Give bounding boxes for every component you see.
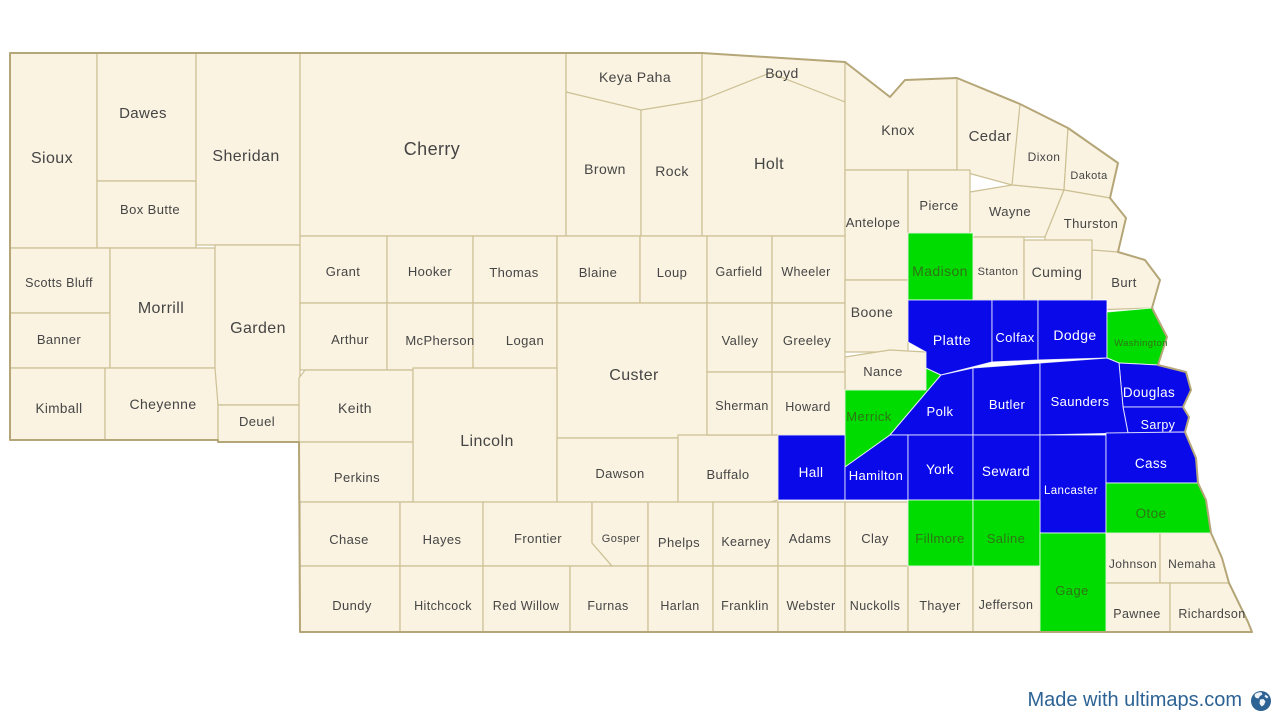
county-label-chase: Chase <box>329 532 369 547</box>
county-label-johnson: Johnson <box>1109 557 1157 571</box>
county-label-red-willow: Red Willow <box>493 599 560 613</box>
county-label-clay: Clay <box>861 531 889 546</box>
county-label-madison: Madison <box>912 263 968 279</box>
county-label-seward: Seward <box>982 464 1030 479</box>
county-label-polk: Polk <box>927 404 954 419</box>
county-label-colfax: Colfax <box>995 330 1034 345</box>
county-label-dawson: Dawson <box>595 466 644 481</box>
county-label-sherman: Sherman <box>715 399 769 413</box>
county-washington[interactable] <box>1107 308 1167 365</box>
county-label-antelope: Antelope <box>846 215 901 230</box>
county-label-garfield: Garfield <box>716 265 763 279</box>
globe-icon <box>1250 690 1272 712</box>
county-label-platte: Platte <box>933 332 971 348</box>
county-label-nuckolls: Nuckolls <box>850 599 900 613</box>
county-label-scotts-bluff: Scotts Bluff <box>25 276 93 290</box>
county-label-hamilton: Hamilton <box>849 468 904 483</box>
county-label-dodge: Dodge <box>1053 327 1096 343</box>
county-label-loup: Loup <box>657 265 688 280</box>
county-lancaster[interactable] <box>1040 435 1106 533</box>
county-label-deuel: Deuel <box>239 414 275 429</box>
county-label-garden: Garden <box>230 320 286 337</box>
county-label-furnas: Furnas <box>587 599 628 613</box>
county-label-greeley: Greeley <box>783 333 831 348</box>
county-label-howard: Howard <box>785 400 830 414</box>
county-holt[interactable] <box>702 73 845 236</box>
county-label-rock: Rock <box>655 163 689 179</box>
county-label-franklin: Franklin <box>721 599 769 613</box>
county-label-dixon: Dixon <box>1028 150 1061 164</box>
county-label-cass: Cass <box>1135 456 1167 471</box>
county-label-gosper: Gosper <box>602 533 640 545</box>
nebraska-county-map: SiouxDawesBox ButteSheridanScotts BluffB… <box>0 0 1280 720</box>
county-label-stanton: Stanton <box>978 266 1019 278</box>
county-label-cedar: Cedar <box>969 128 1012 145</box>
county-label-sioux: Sioux <box>31 150 73 167</box>
county-label-pierce: Pierce <box>919 198 958 213</box>
county-label-blaine: Blaine <box>579 265 618 280</box>
county-label-nance: Nance <box>863 364 903 379</box>
county-label-hitchcock: Hitchcock <box>414 599 472 613</box>
county-label-dundy: Dundy <box>332 598 372 613</box>
county-label-butler: Butler <box>989 397 1026 412</box>
county-label-grant: Grant <box>326 264 361 279</box>
county-label-buffalo: Buffalo <box>706 467 749 482</box>
county-label-gage: Gage <box>1055 583 1088 598</box>
county-label-saline: Saline <box>987 531 1026 546</box>
county-label-kearney: Kearney <box>721 535 771 549</box>
county-label-frontier: Frontier <box>514 531 562 546</box>
map-canvas: SiouxDawesBox ButteSheridanScotts BluffB… <box>0 0 1280 720</box>
county-label-brown: Brown <box>584 161 626 177</box>
attribution-text: Made with ultimaps.com <box>1027 689 1242 712</box>
county-label-holt: Holt <box>754 156 784 173</box>
county-label-valley: Valley <box>722 333 759 348</box>
county-label-wayne: Wayne <box>989 204 1031 219</box>
county-label-dakota: Dakota <box>1070 170 1108 182</box>
county-label-boone: Boone <box>851 304 893 320</box>
county-label-cuming: Cuming <box>1032 264 1083 280</box>
county-phelps[interactable] <box>648 502 713 566</box>
county-label-hayes: Hayes <box>423 532 462 547</box>
county-label-kimball: Kimball <box>35 401 82 416</box>
county-label-harlan: Harlan <box>660 599 699 613</box>
county-label-cheyenne: Cheyenne <box>129 396 196 412</box>
county-label-webster: Webster <box>786 599 835 613</box>
county-dakota[interactable] <box>1064 128 1118 198</box>
county-label-adams: Adams <box>789 531 832 546</box>
county-label-douglas: Douglas <box>1123 385 1175 400</box>
county-label-sheridan: Sheridan <box>212 148 279 165</box>
county-label-perkins: Perkins <box>334 470 380 485</box>
county-label-boyd: Boyd <box>765 65 799 81</box>
attribution-link[interactable]: Made with ultimaps.com <box>1027 689 1272 712</box>
county-label-richardson: Richardson <box>1178 607 1245 621</box>
county-label-hall: Hall <box>799 465 824 480</box>
county-label-morrill: Morrill <box>138 300 184 317</box>
county-label-burt: Burt <box>1111 275 1136 290</box>
county-label-lincoln: Lincoln <box>460 433 514 450</box>
county-label-hooker: Hooker <box>408 264 453 279</box>
county-label-saunders: Saunders <box>1051 394 1110 409</box>
county-label-sarpy: Sarpy <box>1141 418 1176 432</box>
county-label-banner: Banner <box>37 332 82 347</box>
county-label-keya-paha: Keya Paha <box>599 69 671 85</box>
county-label-thomas: Thomas <box>489 265 538 280</box>
county-label-logan: Logan <box>506 333 544 348</box>
county-label-box-butte: Box Butte <box>120 202 180 217</box>
county-label-washington: Washington <box>1114 338 1168 349</box>
county-dixon[interactable] <box>1012 104 1068 190</box>
county-label-mcpherson: McPherson <box>405 333 474 348</box>
county-label-keith: Keith <box>338 400 372 416</box>
county-label-thayer: Thayer <box>919 599 960 613</box>
county-label-dawes: Dawes <box>119 105 167 122</box>
county-kearney[interactable] <box>713 502 778 566</box>
county-label-lancaster: Lancaster <box>1044 485 1098 497</box>
county-label-thurston: Thurston <box>1064 216 1119 231</box>
county-label-york: York <box>926 462 954 477</box>
county-label-pawnee: Pawnee <box>1113 607 1161 621</box>
county-label-custer: Custer <box>609 367 659 384</box>
county-label-otoe: Otoe <box>1136 506 1167 521</box>
county-label-wheeler: Wheeler <box>781 265 830 279</box>
county-label-arthur: Arthur <box>331 332 369 347</box>
county-label-jefferson: Jefferson <box>979 598 1034 612</box>
county-label-merrick: Merrick <box>846 409 892 424</box>
county-label-knox: Knox <box>881 122 915 138</box>
county-label-fillmore: Fillmore <box>915 531 964 546</box>
county-label-cherry: Cherry <box>404 139 460 159</box>
county-label-nemaha: Nemaha <box>1168 557 1216 571</box>
county-label-phelps: Phelps <box>658 535 700 550</box>
